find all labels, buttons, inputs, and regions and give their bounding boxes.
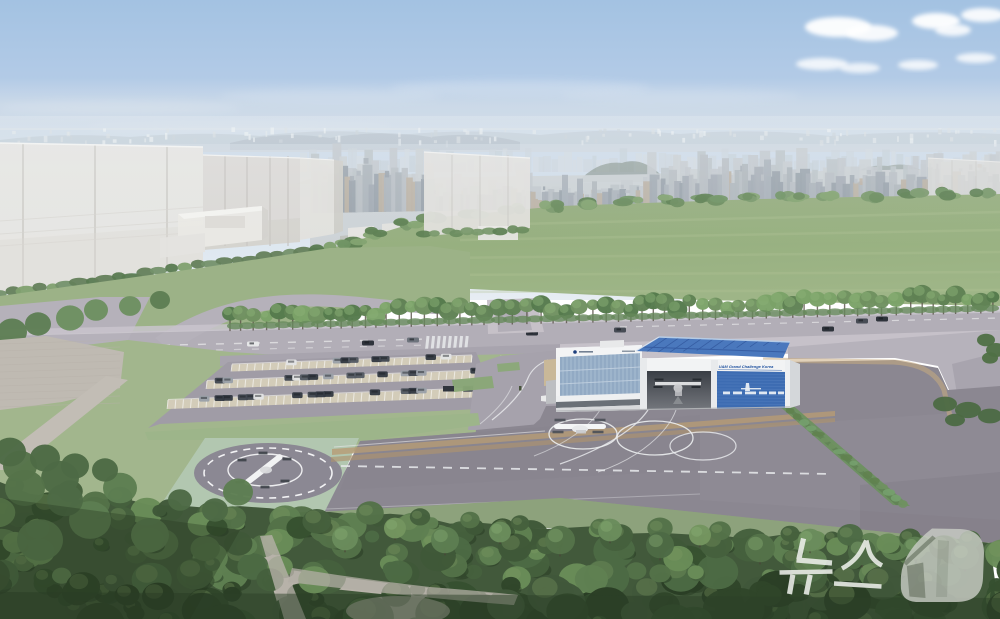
svg-text:UAM Grand Challenge Korea: UAM Grand Challenge Korea: [719, 364, 774, 369]
